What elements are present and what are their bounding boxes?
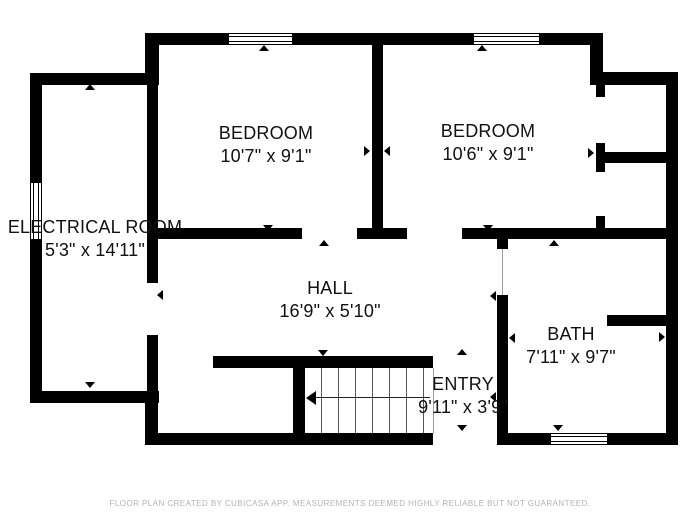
door-marker-icon (384, 146, 390, 156)
window-marker-icon (259, 45, 269, 51)
window-marker-icon (553, 425, 563, 431)
window-bedroom-left (228, 33, 293, 45)
room-dimensions: 7'11" x 9'7" (526, 346, 616, 369)
door-marker-icon (490, 291, 496, 301)
staircase (305, 368, 433, 433)
stairs-direction-arrow-icon (306, 391, 316, 405)
wall-stairs-left (293, 356, 305, 433)
room-label-bath: BATH 7'11" x 9'7" (526, 323, 616, 369)
room-label-bedroom-right: BEDROOM 10'6" x 9'1" (441, 120, 535, 166)
wall-electrical-bottom (30, 391, 159, 403)
room-name: BEDROOM (219, 122, 313, 145)
entry-door-marker-icon (457, 425, 467, 431)
room-dimensions: 9'11" x 3'9" (418, 396, 508, 419)
stairs-direction-line (314, 397, 430, 398)
wall-bedroom-divider (372, 45, 383, 238)
room-name: ENTRY (418, 373, 508, 396)
door-marker-icon (85, 382, 95, 388)
room-label-bedroom-left: BEDROOM 10'7" x 9'1" (219, 122, 313, 168)
room-dimensions: 10'7" x 9'1" (219, 145, 313, 168)
door-marker-icon (549, 240, 559, 246)
floor-plan: BEDROOM 10'7" x 9'1" BEDROOM 10'6" x 9'1… (0, 0, 700, 525)
footer-disclaimer: FLOOR PLAN CREATED BY CUBICASA APP. MEAS… (0, 499, 700, 508)
door-marker-icon (483, 225, 493, 231)
room-name: BEDROOM (441, 120, 535, 143)
room-label-electrical: ELECTRICAL ROOM 5'3" x 14'11" (8, 216, 182, 262)
window-bath (550, 433, 608, 445)
room-name: ELECTRICAL ROOM (8, 216, 182, 239)
window-marker-icon (477, 45, 487, 51)
room-label-hall: HALL 16'9" x 5'10" (279, 277, 380, 323)
door-marker-icon (263, 225, 273, 231)
door-marker-icon (509, 333, 515, 343)
room-name: HALL (279, 277, 380, 300)
door-marker-icon (150, 146, 156, 156)
wall-closet-stub-mid (596, 143, 605, 172)
wall-stairs-top (213, 356, 433, 368)
room-label-entry: ENTRY 9'11" x 3'9" (418, 373, 508, 419)
room-dimensions: 10'6" x 9'1" (441, 143, 535, 166)
door-marker-icon (364, 146, 370, 156)
wall-top-right-step (590, 72, 678, 85)
door-marker-icon (659, 332, 665, 342)
door-marker-icon (457, 349, 467, 355)
room-name: BATH (526, 323, 616, 346)
window-bedroom-right (473, 33, 540, 45)
wall-hall-top-b (357, 228, 407, 239)
wall-bath-west-stub (497, 239, 508, 249)
wall-closet-divider (596, 152, 666, 163)
door-marker-icon (588, 148, 594, 158)
wall-right (666, 72, 678, 445)
open-boundary-bath (502, 249, 503, 295)
wall-hall-top-c (462, 228, 670, 239)
wall-closet-stub-top (596, 85, 605, 97)
door-marker-icon (318, 350, 328, 356)
room-dimensions: 16'9" x 5'10" (279, 300, 380, 323)
room-dimensions: 5'3" x 14'11" (8, 239, 182, 262)
wall-bottom-left (145, 433, 433, 445)
wall-bedroom1-west-lower (147, 335, 158, 391)
door-marker-icon (157, 290, 163, 300)
door-marker-icon (85, 84, 95, 90)
door-marker-icon (319, 240, 329, 246)
wall-bath-west (497, 295, 508, 445)
wall-closet-stub-low (596, 216, 605, 229)
wall-top-right-corner (590, 33, 603, 73)
